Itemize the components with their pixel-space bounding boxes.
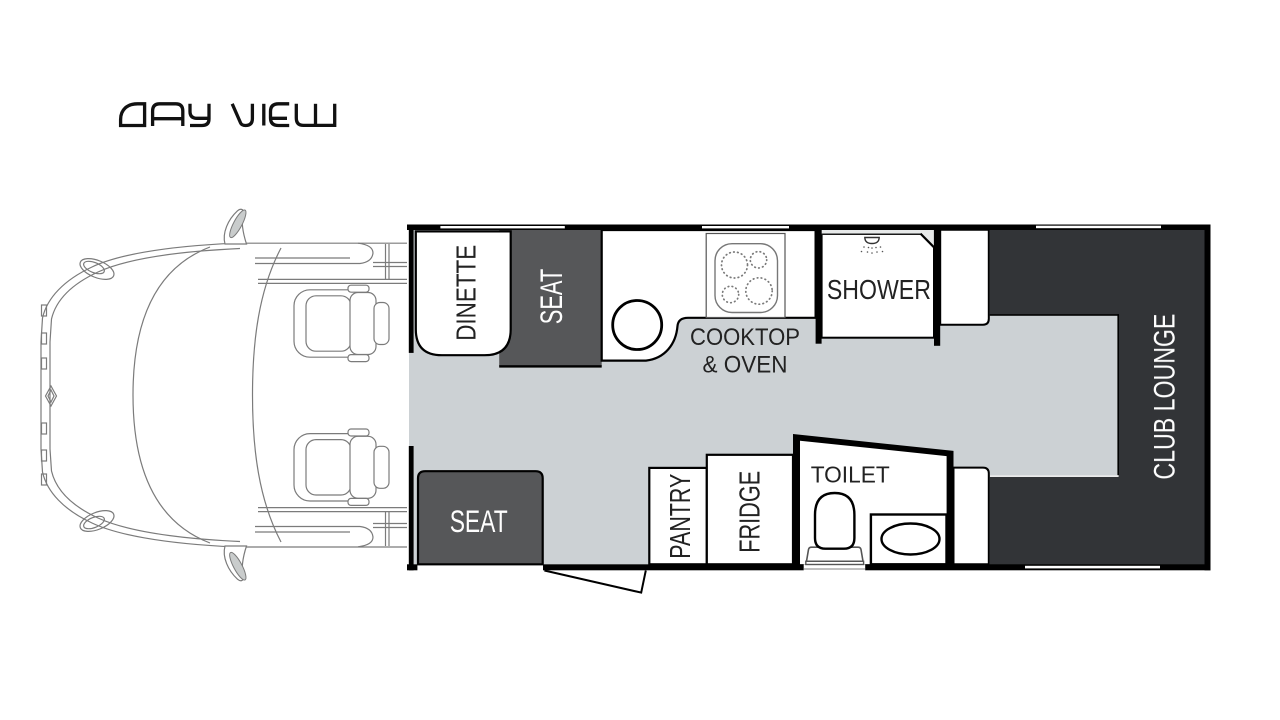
svg-text:SHOWER: SHOWER (827, 274, 931, 305)
svg-text:COOKTOP: COOKTOP (690, 324, 800, 351)
svg-text:TOILET: TOILET (811, 462, 890, 488)
svg-text:CLUB LOUNGE: CLUB LOUNGE (1149, 314, 1182, 480)
svg-text:FRIDGE: FRIDGE (735, 471, 767, 553)
svg-text:PANTRY: PANTRY (665, 474, 697, 559)
svg-text:SEAT: SEAT (533, 269, 569, 325)
svg-text:DINETTE: DINETTE (451, 245, 482, 341)
svg-text:& OVEN: & OVEN (703, 352, 788, 379)
svg-text:SEAT: SEAT (450, 503, 508, 539)
